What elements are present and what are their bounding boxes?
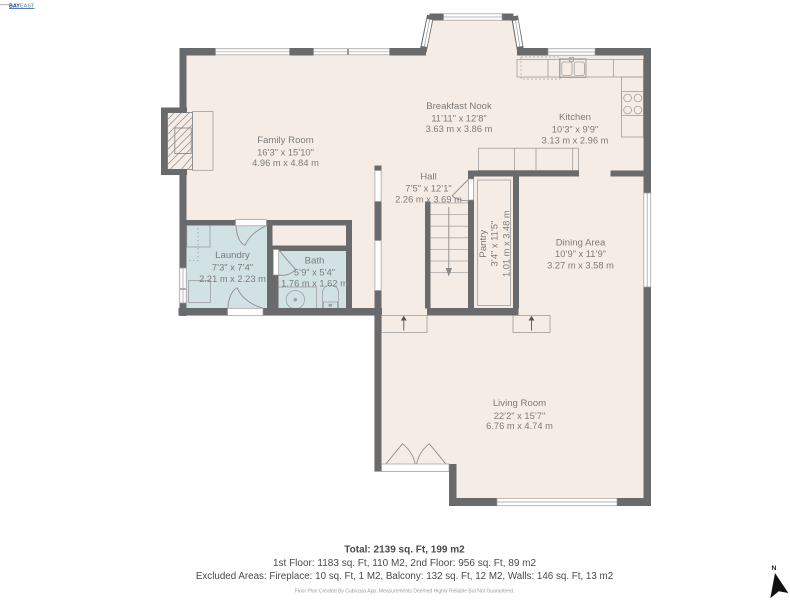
svg-text:1.76 m x 1.62 m: 1.76 m x 1.62 m: [281, 278, 348, 288]
svg-text:Kitchen: Kitchen: [559, 112, 591, 123]
svg-text:3.27 m x 3.58 m: 3.27 m x 3.58 m: [547, 260, 614, 270]
svg-text:7’5" x 12’1": 7’5" x 12’1": [405, 184, 451, 194]
svg-text:Family Room: Family Room: [257, 135, 314, 146]
svg-text:2.26 m x 3.69 m: 2.26 m x 3.69 m: [395, 195, 462, 205]
svg-text:Laundry: Laundry: [215, 250, 250, 261]
svg-text:6.76 m x 4.74 m: 6.76 m x 4.74 m: [486, 421, 553, 431]
svg-text:Floor Plan Created By Cubicasa: Floor Plan Created By Cubicasa App. Meas…: [295, 589, 515, 595]
svg-text:2.21 m x 2.23 m: 2.21 m x 2.23 m: [199, 274, 266, 284]
svg-text:16’3" x 15’10": 16’3" x 15’10": [257, 148, 314, 158]
svg-text:Breakfast Nook: Breakfast Nook: [426, 101, 492, 112]
svg-text:1.01 m x 3.48 m: 1.01 m x 3.48 m: [502, 210, 512, 277]
svg-text:Pantry: Pantry: [478, 230, 489, 258]
svg-text:3’4" x 11’5": 3’4" x 11’5": [490, 221, 500, 267]
svg-text:Dining Area: Dining Area: [556, 237, 606, 248]
svg-text:1st Floor: 1183 sq. Ft, 110 M2: 1st Floor: 1183 sq. Ft, 110 M2, 2nd Floo…: [273, 558, 537, 569]
svg-text:Total: 2139 sq. Ft, 199 m2: Total: 2139 sq. Ft, 199 m2: [344, 544, 465, 555]
svg-text:22’2" x 15’7": 22’2" x 15’7": [494, 411, 546, 421]
svg-text:Hall: Hall: [420, 172, 437, 183]
svg-text:10’9" x 11’9": 10’9" x 11’9": [555, 249, 606, 259]
svg-text:Bath: Bath: [305, 256, 325, 267]
svg-text:4.96 m x 4.84 m: 4.96 m x 4.84 m: [252, 158, 319, 168]
svg-text:N: N: [772, 565, 777, 572]
svg-text:5’9" x 5’4": 5’9" x 5’4": [294, 267, 335, 277]
svg-text:7’3" x 7’4": 7’3" x 7’4": [212, 262, 253, 272]
svg-text:3.13 m x 2.96 m: 3.13 m x 2.96 m: [542, 136, 609, 146]
svg-text:3.63 m x 3.86 m: 3.63 m x 3.86 m: [426, 124, 493, 134]
svg-text:11’11" x 12’8": 11’11" x 12’8": [431, 114, 486, 124]
svg-text:Living Room: Living Room: [493, 398, 546, 409]
svg-text:10’3" x 9’9": 10’3" x 9’9": [552, 124, 598, 134]
svg-text:Excluded Areas: Fireplace: 10: Excluded Areas: Fireplace: 10 sq. Ft, 1 …: [196, 571, 613, 582]
